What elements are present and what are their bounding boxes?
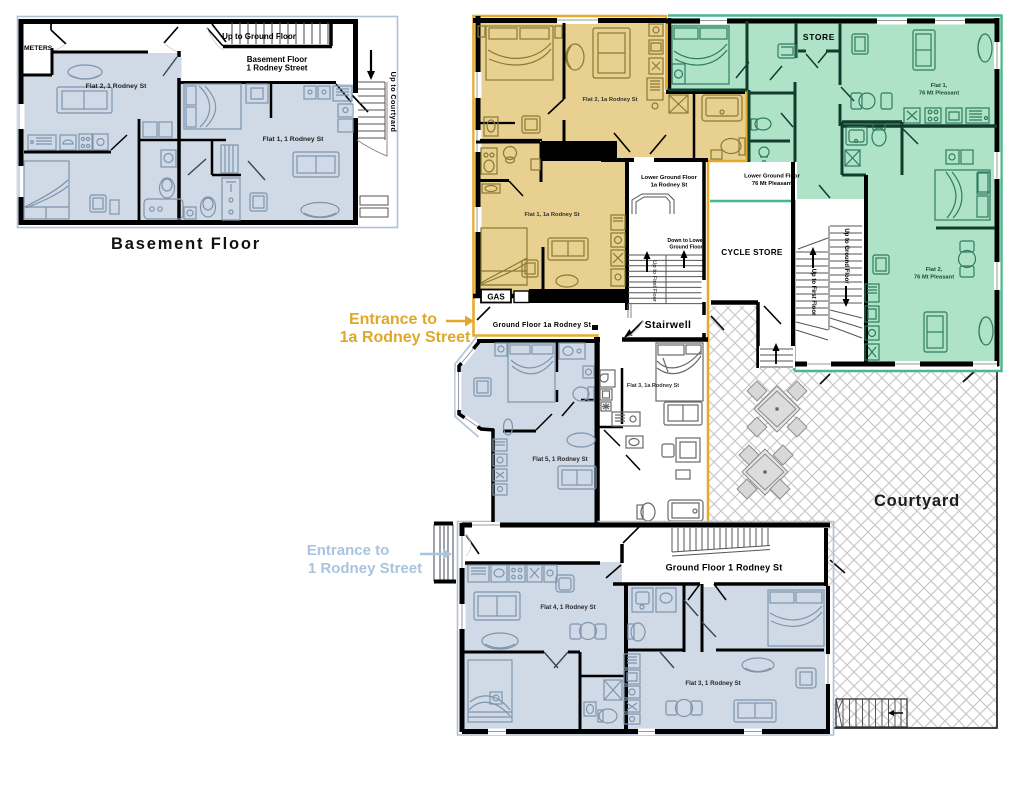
svg-text:Ground Floor 1a Rodney St: Ground Floor 1a Rodney St (493, 322, 592, 329)
svg-text:Lower Ground Floor: Lower Ground Floor (744, 174, 800, 180)
svg-text:STORE: STORE (803, 32, 835, 42)
svg-text:Flat 1, 1 Rodney St: Flat 1, 1 Rodney St (263, 136, 325, 143)
svg-text:METERS: METERS (24, 45, 53, 52)
svg-text:Up to Ground Floor: Up to Ground Floor (222, 32, 296, 41)
svg-text:76 Mt Pleasant: 76 Mt Pleasant (914, 275, 954, 281)
svg-text:GAS: GAS (487, 293, 505, 302)
svg-text:Down to Lower: Down to Lower (667, 238, 704, 244)
svg-text:76 Mt Pleasant: 76 Mt Pleasant (752, 181, 792, 187)
svg-text:Up to First Floor: Up to First Floor (651, 260, 657, 302)
svg-text:Ground Floor 1 Rodney St: Ground Floor 1 Rodney St (666, 563, 783, 573)
svg-text:CYCLE STORE: CYCLE STORE (721, 248, 783, 257)
svg-text:Flat 3, 1a Rodney St: Flat 3, 1a Rodney St (627, 383, 679, 389)
svg-text:Flat 4, 1 Rodney St: Flat 4, 1 Rodney St (540, 604, 595, 611)
svg-text:Ground Floor: Ground Floor (669, 245, 702, 251)
svg-text:Up to Courtyard: Up to Courtyard (389, 72, 398, 133)
svg-text:1 Rodney Street: 1 Rodney Street (247, 64, 308, 73)
svg-text:Up to Ground Floor: Up to Ground Floor (843, 228, 849, 284)
svg-text:Entrance to: Entrance to (349, 311, 437, 328)
svg-text:Flat 2,: Flat 2, (926, 267, 943, 273)
svg-text:1a Rodney St: 1a Rodney St (651, 183, 688, 189)
svg-text:Up to First Floor: Up to First Floor (810, 269, 816, 316)
svg-text:Basement Floor: Basement Floor (111, 235, 261, 253)
svg-text:1 Rodney Street: 1 Rodney Street (308, 560, 422, 577)
svg-text:Flat 3, 1 Rodney St: Flat 3, 1 Rodney St (685, 680, 740, 687)
svg-text:Flat 1,: Flat 1, (931, 83, 948, 89)
svg-text:1a Rodney Street: 1a Rodney Street (340, 329, 471, 346)
svg-text:Flat 5, 1 Rodney St: Flat 5, 1 Rodney St (532, 456, 587, 463)
svg-text:Courtyard: Courtyard (874, 492, 960, 510)
svg-text:Lower Ground Floor: Lower Ground Floor (641, 175, 697, 181)
svg-text:Flat 2, 1 Rodney St: Flat 2, 1 Rodney St (86, 83, 148, 90)
svg-text:Stairwell: Stairwell (645, 319, 692, 331)
svg-text:Flat 1, 1a Rodney St: Flat 1, 1a Rodney St (524, 212, 579, 218)
svg-text:Flat 2, 1a Rodney St: Flat 2, 1a Rodney St (582, 97, 637, 103)
svg-text:76 Mt Pleasant: 76 Mt Pleasant (919, 91, 959, 97)
svg-text:Entrance to: Entrance to (307, 542, 390, 559)
